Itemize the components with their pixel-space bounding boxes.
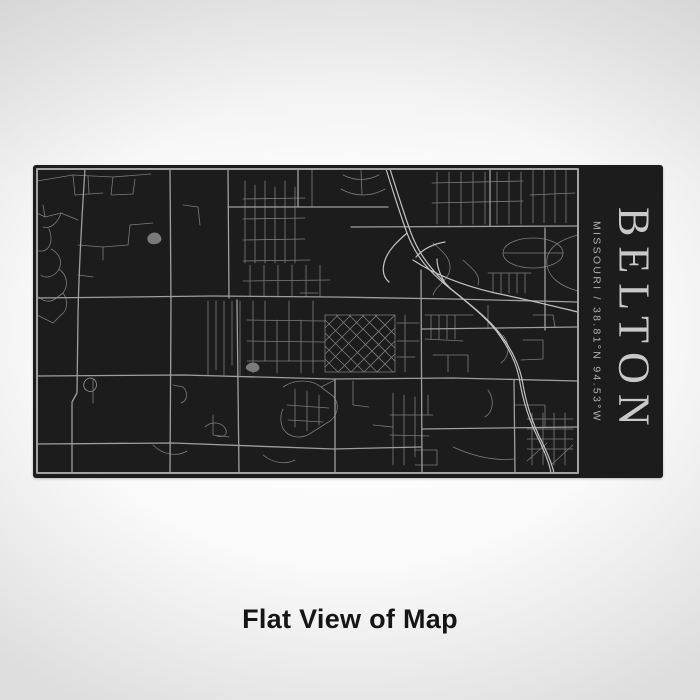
map-layer-minor-roads <box>37 169 578 465</box>
map-label-zone: MISSOURI / 38.81°N 94.53°W BELTON <box>577 165 663 478</box>
map-layer-pond-fills <box>147 233 259 373</box>
map-title: BELTON <box>612 207 656 436</box>
map-subtitle: MISSOURI / 38.81°N 94.53°W <box>591 221 603 423</box>
map-layer-pond-outlines <box>84 378 97 391</box>
map-panel: MISSOURI / 38.81°N 94.53°W BELTON <box>33 165 663 478</box>
map-svg <box>33 165 663 478</box>
view-caption: Flat View of Map <box>0 604 700 635</box>
